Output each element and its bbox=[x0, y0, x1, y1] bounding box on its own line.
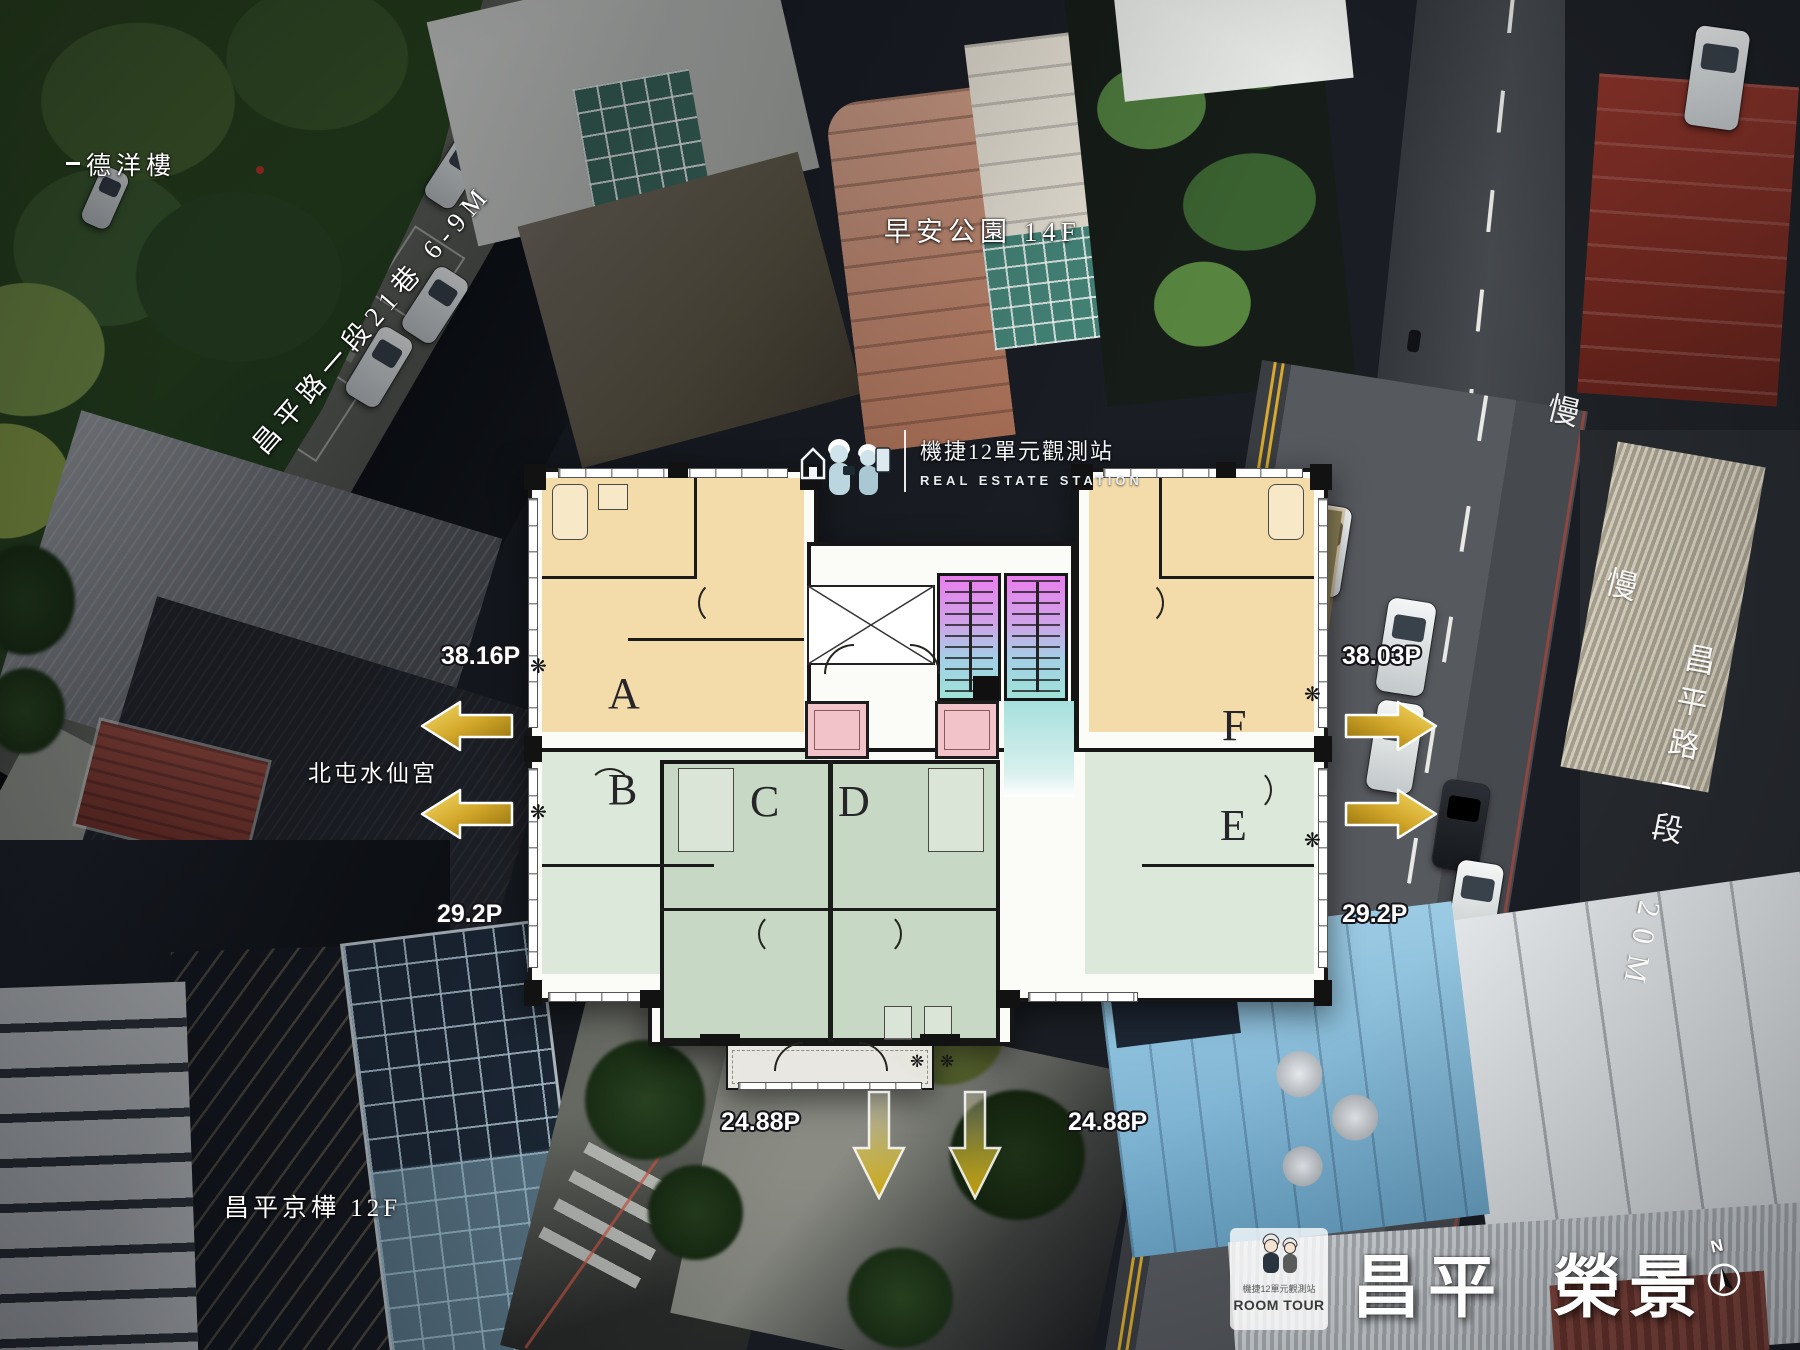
planter-icon: ❋ bbox=[530, 800, 547, 824]
arrow-west-bottom-icon bbox=[420, 788, 514, 845]
station-logo-mark-icon bbox=[796, 420, 896, 502]
stair-rail bbox=[1036, 582, 1039, 692]
column bbox=[996, 990, 1020, 1008]
deyang-leader-dash bbox=[66, 162, 80, 165]
wall bbox=[1142, 864, 1314, 867]
measurement-south-east: 24.88P bbox=[1068, 1108, 1147, 1137]
elevator-left bbox=[805, 701, 869, 759]
column bbox=[524, 736, 542, 762]
arrow-south-left-icon bbox=[852, 1090, 906, 1205]
water-tank bbox=[1280, 1144, 1325, 1189]
wall bbox=[1159, 478, 1162, 579]
tree bbox=[848, 1248, 953, 1348]
label-shuixian-temple: 北屯水仙宮 bbox=[308, 754, 438, 788]
bathtub bbox=[1268, 484, 1304, 540]
label-morning-park: 早安公園 14F bbox=[884, 210, 1081, 249]
window-strip bbox=[528, 768, 538, 968]
column bbox=[668, 462, 688, 478]
station-logo-divider bbox=[904, 430, 906, 492]
wall bbox=[628, 638, 804, 641]
planter-icon: ❋ bbox=[910, 1052, 924, 1072]
door-arc bbox=[588, 768, 632, 812]
measurement-west-north: 38.16P bbox=[441, 642, 520, 671]
planter-icon: ❋ bbox=[940, 1052, 954, 1072]
floor-plan: A B C D E F ❋ ❋ ❋ bbox=[528, 468, 1328, 1092]
label-deyang-building: 德洋樓 bbox=[86, 146, 176, 182]
measurement-east-south: 29.2P bbox=[1342, 900, 1407, 929]
door-arc bbox=[1228, 768, 1272, 812]
room-tour-badge: 機捷12單元觀測站 ROOM TOUR bbox=[1230, 1228, 1328, 1330]
column bbox=[1216, 462, 1236, 478]
window-strip bbox=[1318, 768, 1328, 968]
arrow-west-top-icon bbox=[420, 700, 514, 757]
station-logo: 機捷12單元觀測站 REAL ESTATE STATION bbox=[796, 420, 1143, 502]
planter-icon: ❋ bbox=[1304, 682, 1321, 706]
bathtub bbox=[552, 484, 588, 540]
fixture bbox=[598, 484, 628, 510]
core-teal-lobby bbox=[1004, 701, 1074, 797]
column bbox=[1314, 980, 1332, 1006]
arrow-east-top-icon bbox=[1344, 700, 1438, 757]
door-arc bbox=[858, 912, 902, 956]
wall bbox=[542, 864, 714, 867]
measurement-east-north: 38.03P bbox=[1342, 642, 1421, 671]
small-shaft bbox=[973, 676, 999, 700]
column bbox=[1310, 464, 1332, 490]
planter-icon: ❋ bbox=[1304, 828, 1321, 852]
elevator-right bbox=[935, 701, 999, 759]
wall bbox=[1162, 576, 1314, 579]
door-arc bbox=[1118, 580, 1164, 626]
unit-label-a: A bbox=[608, 668, 640, 719]
measurement-south-west: 24.88P bbox=[721, 1108, 800, 1137]
column bbox=[640, 990, 664, 1008]
arrow-east-bottom-icon bbox=[1344, 788, 1438, 845]
arrow-south-right-icon bbox=[948, 1090, 1002, 1205]
label-jinghua-building: 昌平京樺 12F bbox=[224, 1188, 401, 1224]
wall bbox=[542, 576, 694, 579]
column bbox=[920, 1034, 960, 1046]
stair-rail bbox=[969, 582, 972, 692]
bath-pod bbox=[678, 768, 734, 852]
station-logo-subtitle: REAL ESTATE STATION bbox=[920, 473, 1143, 488]
scooter-tail-light bbox=[256, 166, 264, 174]
unit-label-d: D bbox=[838, 776, 870, 827]
room-tour-station-name: 機捷12單元觀測站 bbox=[1230, 1282, 1328, 1295]
tree bbox=[648, 1165, 743, 1260]
door-arc bbox=[698, 580, 744, 626]
unit-e-area bbox=[1085, 752, 1314, 974]
window-strip bbox=[528, 498, 538, 728]
bath-pod bbox=[928, 768, 984, 852]
room-tour-figures-icon bbox=[1230, 1233, 1328, 1280]
door-arc bbox=[758, 912, 802, 956]
unit-label-f: F bbox=[1222, 700, 1246, 751]
project-title: 昌平 榮景 bbox=[1352, 1232, 1705, 1331]
wall bbox=[660, 908, 1000, 911]
water-tank bbox=[1329, 1092, 1380, 1143]
column bbox=[700, 1034, 740, 1046]
wall bbox=[694, 478, 697, 579]
window-strip bbox=[738, 1082, 922, 1090]
column bbox=[524, 464, 546, 490]
unit-label-c: C bbox=[750, 776, 779, 827]
column bbox=[1314, 736, 1332, 762]
kitchen-counter bbox=[884, 1006, 912, 1040]
aerial-composite: { "station_logo": { "title": "機捷12單元觀測站"… bbox=[0, 0, 1800, 1350]
white-corner-building bbox=[0, 982, 199, 1350]
column bbox=[524, 980, 542, 1006]
planter-icon: ❋ bbox=[530, 654, 547, 678]
room-tour-label: ROOM TOUR bbox=[1230, 1297, 1328, 1313]
stairwell-right bbox=[1004, 573, 1068, 701]
station-logo-title: 機捷12單元觀測站 bbox=[920, 434, 1143, 466]
wall bbox=[828, 760, 833, 1042]
measurement-west-south: 29.2P bbox=[437, 900, 502, 929]
window-strip bbox=[1028, 992, 1138, 1002]
